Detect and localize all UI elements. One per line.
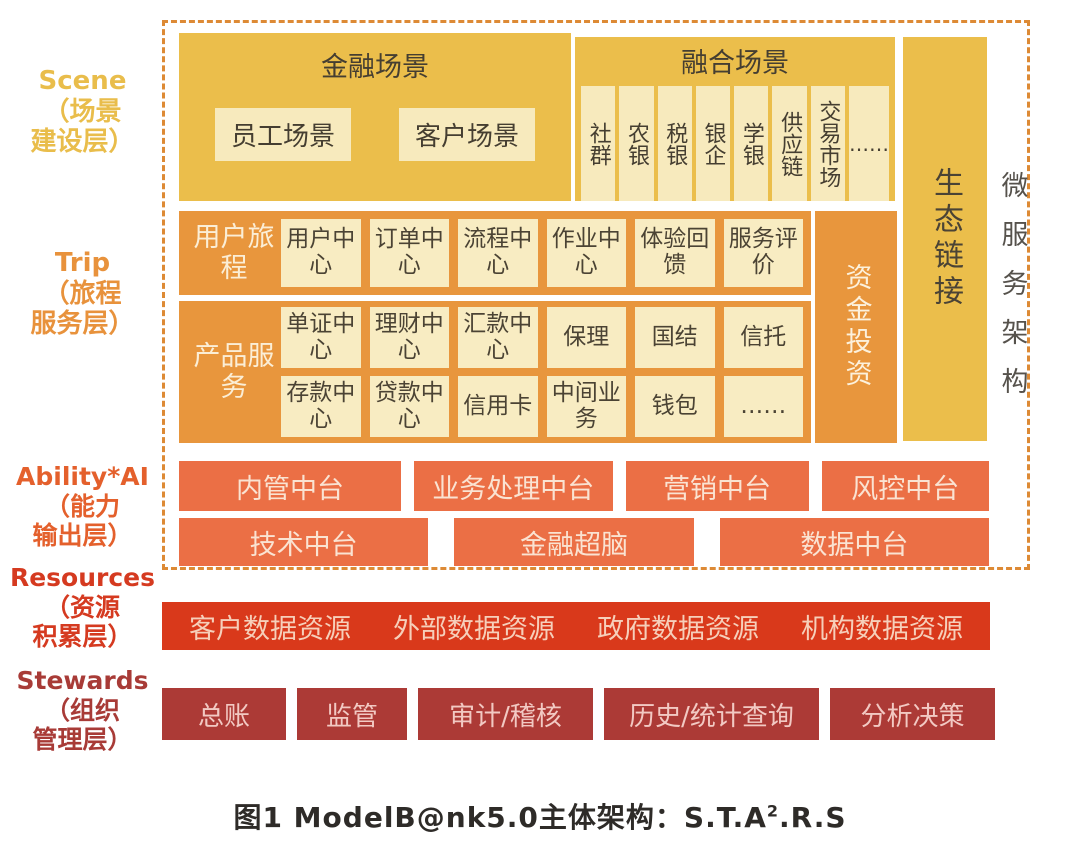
product-chip-factoring: 保理 — [547, 307, 627, 368]
ability-chip-risk-control: 风控中台 — [822, 461, 989, 511]
steward-chip-general-ledger: 总账 — [162, 688, 286, 740]
product-chip-wealth-center: 理财中心 — [370, 307, 450, 368]
layer-label-stewards: Stewards （组织 管理层） — [0, 666, 165, 755]
user-journey-items: 用户中心 订单中心 流程中心 作业中心 体验回馈 服务评价 — [281, 219, 803, 287]
scene-label-zh2: 建设层） — [0, 127, 165, 158]
trip-label-en: Trip — [0, 248, 165, 279]
journey-chip-order-center: 订单中心 — [370, 219, 450, 287]
journey-chip-ops-center: 作业中心 — [547, 219, 627, 287]
ability-chip-finance-brain: 金融超脑 — [454, 518, 693, 566]
scene-label-zh1: （场景 — [0, 97, 165, 128]
layer-label-ability: Ability*AI （能力 输出层） — [0, 462, 165, 551]
steward-chip-audit: 审计/稽核 — [418, 688, 593, 740]
microservice-arch-label: 微服务架构 — [995, 171, 1029, 481]
resource-government-data: 政府数据资源 — [597, 607, 759, 646]
ability-row-1: 内管中台 业务处理中台 营销中台 风控中台 — [179, 461, 989, 511]
product-chip-loan-center: 贷款中心 — [370, 376, 450, 437]
resources-bar: 客户数据资源 外部数据资源 政府数据资源 机构数据资源 — [162, 602, 990, 650]
architecture-diagram-page: Scene （场景 建设层） Trip （旅程 服务层） Ability*AI … — [0, 0, 1080, 863]
resource-customer-data: 客户数据资源 — [189, 607, 351, 646]
financial-scene-group: 金融场景 员工场景 客户场景 — [179, 33, 571, 201]
product-service-block: 产品服务 单证中心 理财中心 汇款中心 保理 国结 信托 存款中心 贷款中心 信… — [179, 301, 811, 443]
product-chip-doc-center: 单证中心 — [281, 307, 361, 368]
fusion-scene-items: 社群 农银 税银 银企 学银 供应链 交易市场 …… — [581, 86, 889, 201]
steward-chip-analysis: 分析决策 — [830, 688, 995, 740]
layer-label-trip: Trip （旅程 服务层） — [0, 248, 165, 340]
eco-link-label: 生态链接 — [923, 167, 967, 311]
product-service-label: 产品服务 — [187, 341, 281, 403]
caption-tail: .R.S — [779, 801, 847, 834]
journey-chip-service-rating: 服务评价 — [724, 219, 804, 287]
fusion-chip-community: 社群 — [581, 86, 615, 201]
journey-chip-user-center: 用户中心 — [281, 219, 361, 287]
ability-chip-marketing: 营销中台 — [626, 461, 809, 511]
steward-chip-supervision: 监管 — [297, 688, 407, 740]
scene-label-en: Scene — [0, 66, 165, 97]
stewards-label-zh1: （组织 — [0, 696, 165, 726]
architecture-frame: 金融场景 员工场景 客户场景 融合场景 社群 农银 税银 银企 学银 供应链 交… — [162, 20, 1030, 570]
product-chip-wallet: 钱包 — [635, 376, 715, 437]
resource-institution-data: 机构数据资源 — [801, 607, 963, 646]
ability-row-2: 技术中台 金融超脑 数据中台 — [179, 518, 989, 566]
fusion-chip-edu-bank: 学银 — [734, 86, 768, 201]
scene-chip-employee: 员工场景 — [215, 108, 351, 161]
product-chip-credit-card: 信用卡 — [458, 376, 538, 437]
product-chip-deposit-center: 存款中心 — [281, 376, 361, 437]
ability-chip-tech-platform: 技术中台 — [179, 518, 428, 566]
ability-label-en: Ability*AI — [0, 462, 165, 492]
stewards-row: 总账 监管 审计/稽核 历史/统计查询 分析决策 — [162, 688, 995, 740]
caption-main: 图1 ModelB@nk5.0主体架构：S.T.A — [233, 801, 766, 834]
fusion-chip-ellipsis: …… — [849, 86, 889, 201]
fusion-chip-agri-bank: 农银 — [619, 86, 653, 201]
ability-chip-biz-processing: 业务处理中台 — [414, 461, 613, 511]
stewards-label-zh2: 管理层） — [0, 725, 165, 755]
fusion-scene-title: 融合场景 — [681, 41, 789, 80]
ability-label-zh1: （能力 — [0, 492, 165, 522]
stewards-label-en: Stewards — [0, 666, 165, 696]
ability-chip-data-platform: 数据中台 — [720, 518, 989, 566]
journey-chip-process-center: 流程中心 — [458, 219, 538, 287]
product-row-1: 单证中心 理财中心 汇款中心 保理 国结 信托 — [281, 307, 803, 368]
figure-caption: 图1 ModelB@nk5.0主体架构：S.T.A2.R.S — [0, 796, 1080, 836]
caption-superscript: 2 — [767, 802, 779, 821]
steward-chip-history-query: 历史/统计查询 — [604, 688, 819, 740]
financial-scene-items: 员工场景 客户场景 — [215, 108, 535, 161]
resources-label-zh1: （资源 — [0, 593, 165, 623]
product-chip-ellipsis: …… — [724, 376, 804, 437]
fusion-scene-group: 融合场景 社群 农银 税银 银企 学银 供应链 交易市场 …… — [575, 37, 895, 201]
resources-label-zh2: 积累层） — [0, 622, 165, 652]
funding-investment-label: 资金投资 — [837, 263, 876, 391]
product-service-grid: 单证中心 理财中心 汇款中心 保理 国结 信托 存款中心 贷款中心 信用卡 中间… — [281, 307, 803, 437]
eco-link-box: 生态链接 — [903, 37, 987, 441]
product-chip-remittance-center: 汇款中心 — [458, 307, 538, 368]
trip-label-zh1: （旅程 — [0, 279, 165, 310]
resources-label-en: Resources — [0, 563, 165, 593]
fusion-chip-tax-bank: 税银 — [658, 86, 692, 201]
financial-scene-title: 金融场景 — [321, 45, 429, 84]
fusion-chip-supply-chain: 供应链 — [772, 86, 806, 201]
layer-label-resources: Resources （资源 积累层） — [0, 563, 165, 652]
funding-investment-box: 资金投资 — [815, 211, 897, 443]
ability-label-zh2: 输出层） — [0, 521, 165, 551]
fusion-chip-bank-corp: 银企 — [696, 86, 730, 201]
ability-chip-internal-mgmt: 内管中台 — [179, 461, 401, 511]
trip-label-zh2: 服务层） — [0, 309, 165, 340]
fusion-chip-trade-market: 交易市场 — [811, 86, 845, 201]
layer-label-scene: Scene （场景 建设层） — [0, 66, 165, 158]
scene-chip-customer: 客户场景 — [399, 108, 535, 161]
user-journey-row: 用户旅程 用户中心 订单中心 流程中心 作业中心 体验回馈 服务评价 — [179, 211, 811, 295]
user-journey-label: 用户旅程 — [187, 222, 281, 284]
product-chip-intermediary-biz: 中间业务 — [547, 376, 627, 437]
product-row-2: 存款中心 贷款中心 信用卡 中间业务 钱包 …… — [281, 376, 803, 437]
product-chip-intl-settlement: 国结 — [635, 307, 715, 368]
product-chip-trust: 信托 — [724, 307, 804, 368]
resource-external-data: 外部数据资源 — [393, 607, 555, 646]
journey-chip-exp-feedback: 体验回馈 — [635, 219, 715, 287]
